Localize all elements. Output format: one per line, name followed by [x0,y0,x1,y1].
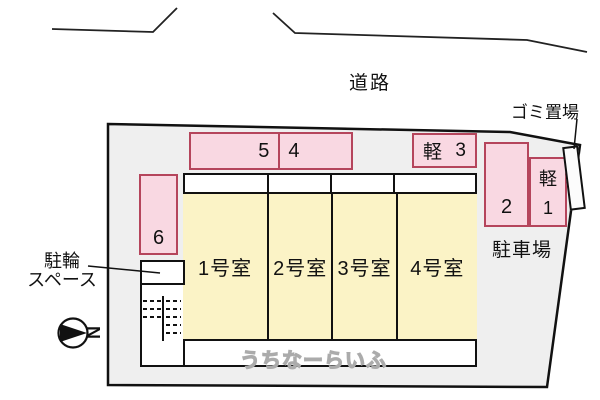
room-2-label: 2号室 [273,252,327,281]
garbage-area-label: ゴミ置場 [511,98,579,123]
road-label: 道路 [330,68,410,95]
bicycle-space-label: 駐輪 スペース [14,252,110,290]
corridor-divider-3 [393,173,395,193]
kei-3-kei-label: 軽 [423,137,442,164]
kei-1-num-label: 1 [543,198,553,219]
bicycle-space-box [140,260,185,285]
kei-1-kei-label: 軽 [539,165,557,191]
north-letter: N [82,326,103,339]
parking-space-6: 6 [139,174,178,255]
room-3: 3号室 [333,194,397,339]
road-edge-right [273,13,587,52]
road-edge-left [52,8,177,32]
parking-space-6-label: 6 [153,227,164,250]
parking-lot-label: 駐車場 [492,235,552,262]
room-1: 1号室 [183,194,269,339]
parking-space-5: 5 [191,134,280,168]
parking-space-5-label: 5 [258,140,269,163]
corridor-divider-1 [267,173,269,193]
room-4: 4号室 [398,194,477,339]
corridor-divider-2 [330,173,332,193]
parking-space-5-4: 5 4 [189,132,353,170]
parking-space-kei-1: 軽 1 [529,157,567,227]
parking-space-4-label: 4 [288,140,299,163]
site-plan: 1号室 2号室 3号室 4号室 5 4 軽 3 2 軽 1 6 道 [0,0,600,400]
bicycle-space-label-line2: スペース [14,271,110,290]
room-3-label: 3号室 [337,252,391,281]
rooms-row: 1号室 2号室 3号室 4号室 [183,192,477,341]
parking-space-2-label: 2 [501,196,512,219]
watermark-text: うちなーらいふ [240,344,387,373]
room-2: 2号室 [269,194,333,339]
parking-space-kei-3: 軽 3 [412,133,477,168]
parking-space-4: 4 [280,134,351,168]
room-4-label: 4号室 [410,252,464,281]
stairwell [140,283,185,367]
parking-space-2: 2 [484,142,529,227]
kei-3-num-label: 3 [455,140,466,162]
room-1-label: 1号室 [198,252,252,281]
bicycle-space-label-line1: 駐輪 [14,252,110,271]
